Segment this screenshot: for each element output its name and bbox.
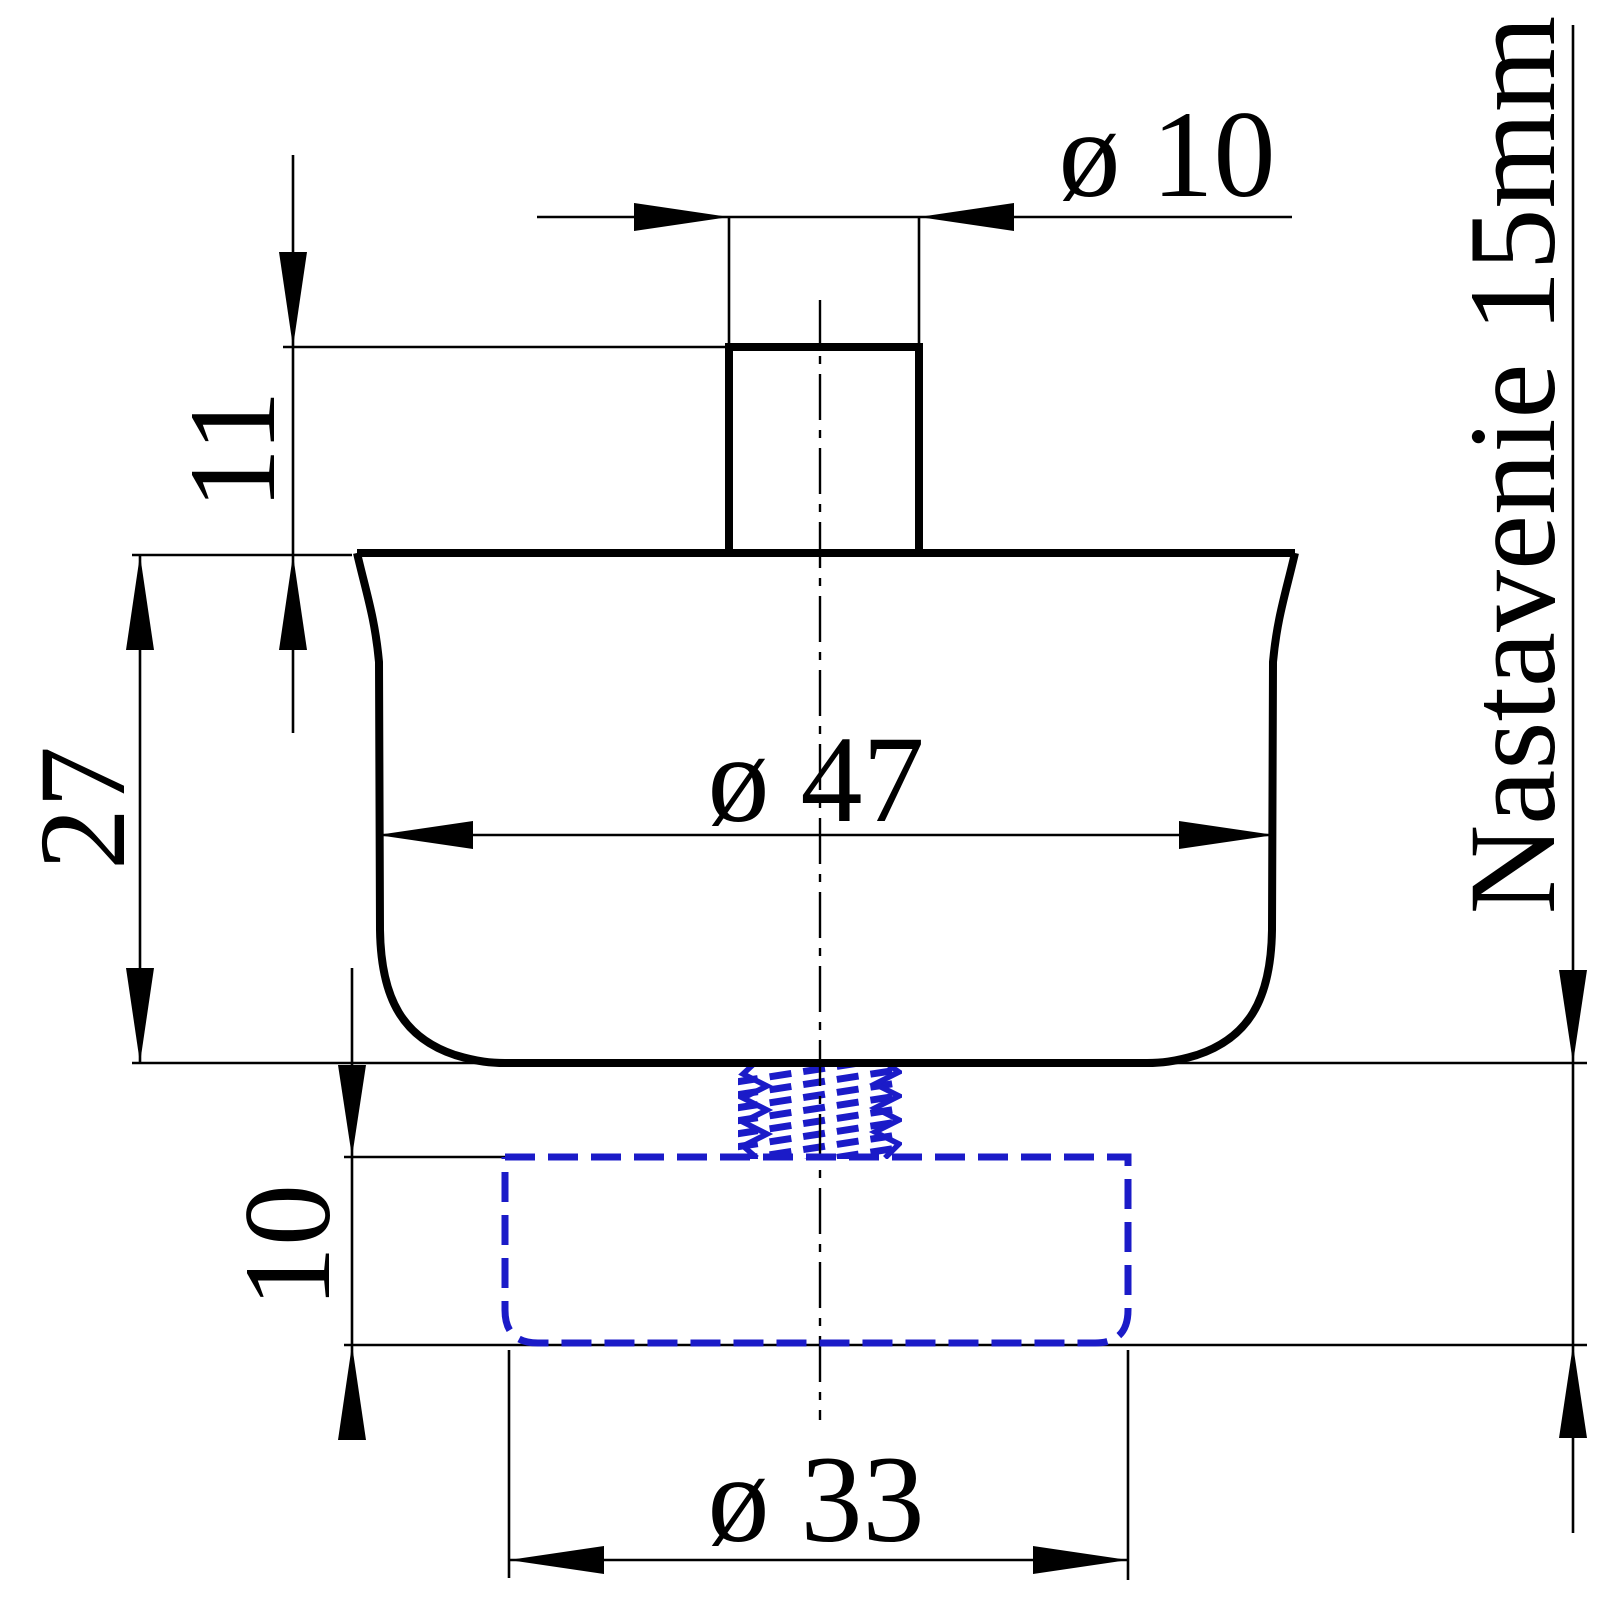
arrow-o47-right bbox=[1179, 821, 1274, 849]
stud-outline bbox=[729, 347, 919, 553]
dim-label-stud-height: 11 bbox=[171, 390, 295, 509]
dim-label-adjustment: Nastavenie 15mm bbox=[1451, 16, 1575, 915]
dim-label-foot-diameter: ø 33 bbox=[708, 1438, 925, 1562]
arrow-o10-right bbox=[919, 203, 1014, 231]
arrow-10-bottom bbox=[338, 1345, 366, 1440]
arrowheads bbox=[126, 203, 1587, 1574]
arrow-15-bottom bbox=[1559, 1345, 1587, 1438]
arrow-o10-left bbox=[634, 203, 729, 231]
dim-label-stud-diameter: ø 10 bbox=[1059, 93, 1276, 217]
part-outline bbox=[357, 347, 1295, 1063]
dim-label-body-height: 27 bbox=[21, 746, 145, 870]
arrow-27-bottom bbox=[126, 968, 154, 1063]
arrow-11-bottom bbox=[279, 555, 307, 650]
dim-label-foot-height: 10 bbox=[226, 1184, 350, 1308]
arrow-10-top bbox=[338, 1065, 366, 1157]
arrow-o33-left bbox=[509, 1546, 604, 1574]
arrow-o47-left bbox=[378, 821, 473, 849]
arrow-11-top bbox=[279, 252, 307, 347]
technical-drawing-canvas: ø 10 11 ø 47 27 10 ø 33 Nastavenie 15mm bbox=[0, 0, 1600, 1600]
arrow-27-top bbox=[126, 555, 154, 650]
dim-label-body-diameter: ø 47 bbox=[708, 718, 925, 842]
foot-cap-hidden bbox=[505, 1157, 1128, 1343]
arrow-15-top bbox=[1559, 970, 1587, 1063]
arrow-o33-right bbox=[1033, 1546, 1128, 1574]
